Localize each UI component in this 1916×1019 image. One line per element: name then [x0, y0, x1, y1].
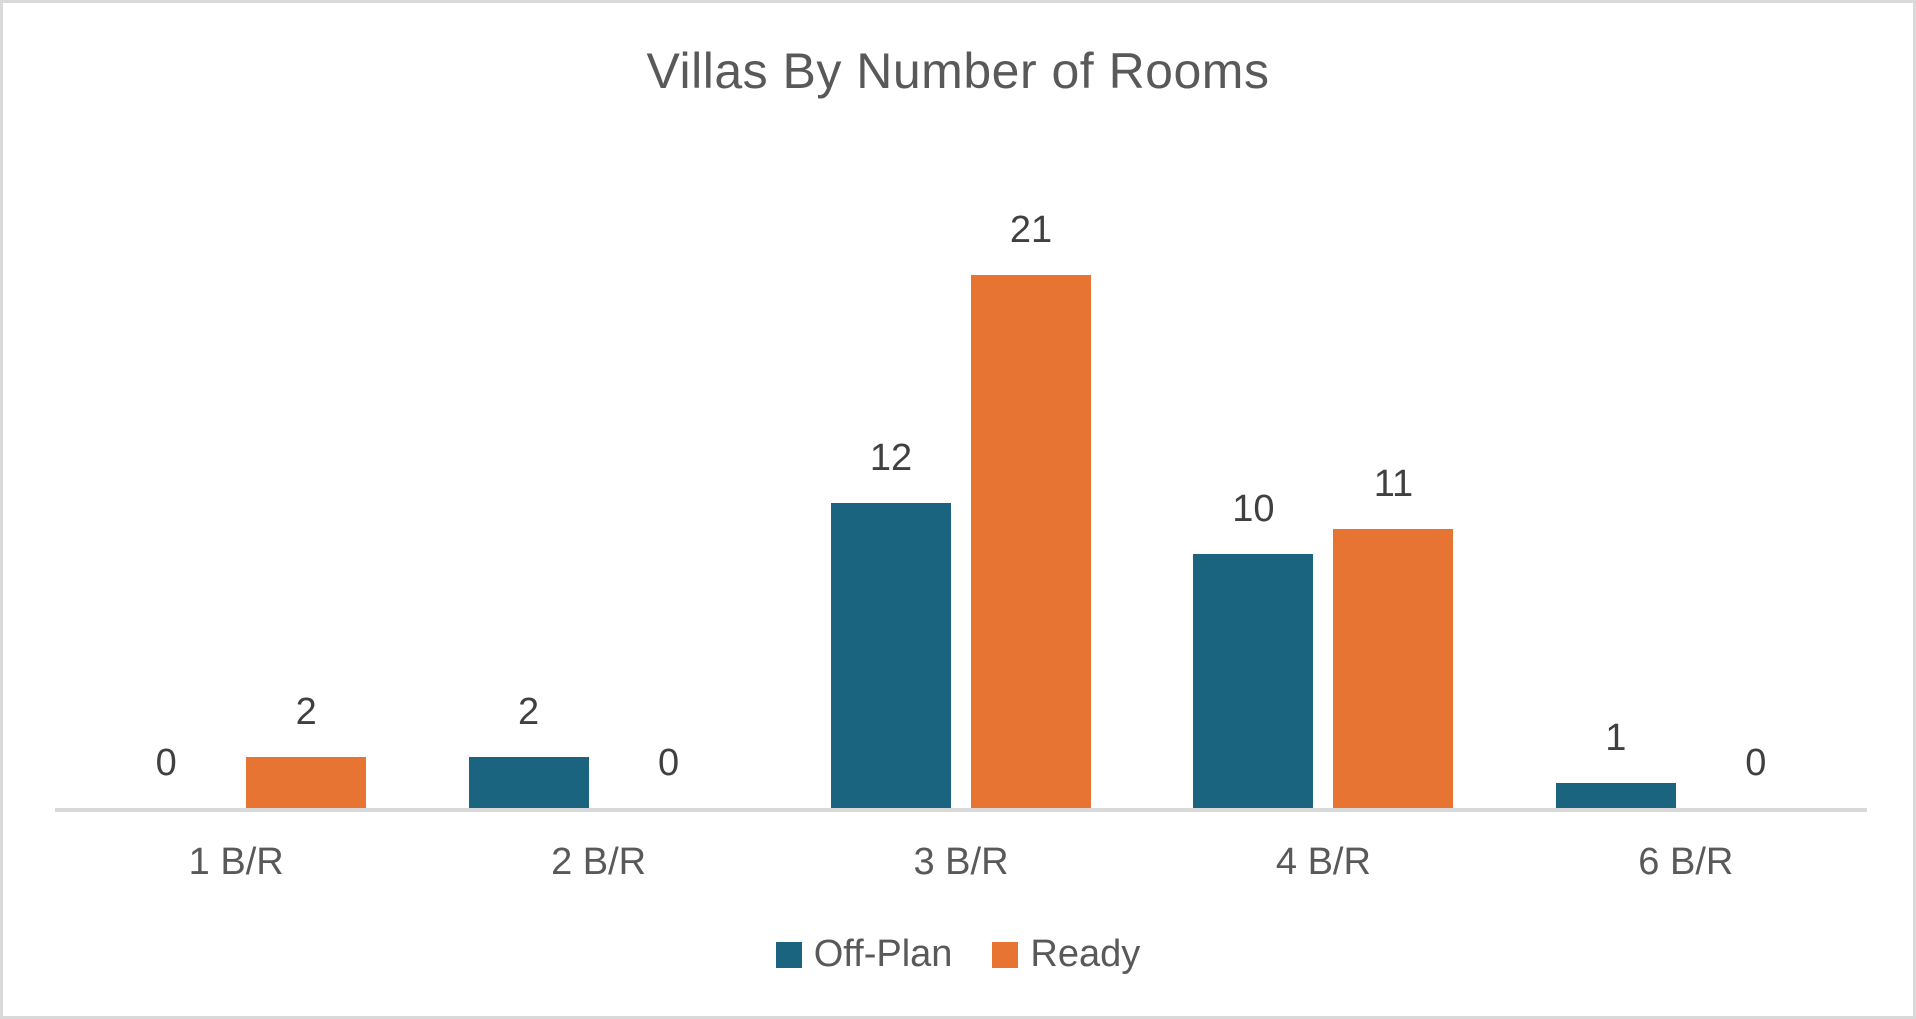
legend-swatch-icon [776, 942, 802, 968]
data-label-off-plan-1-b-r: 0 [156, 742, 177, 786]
x-axis-label-4-b-r: 4 B/R [1142, 841, 1504, 885]
bar-off-plan-4-b-r [1193, 554, 1313, 808]
chart-frame: Villas By Number of Rooms 02201221101110… [0, 0, 1916, 1019]
x-axis-label-2-b-r: 2 B/R [417, 841, 779, 885]
bar-off-plan-2-b-r [469, 757, 589, 808]
bar-column-ready-2-b-r: 0 [609, 742, 729, 808]
bar-column-off-plan-2-b-r: 2 [469, 691, 589, 808]
chart-title: Villas By Number of Rooms [3, 43, 1913, 101]
bar-column-ready-1-b-r: 2 [246, 691, 366, 808]
x-axis-label-1-b-r: 1 B/R [55, 841, 417, 885]
bar-off-plan-3-b-r [831, 503, 951, 808]
plot-area: 02201221101110 [55, 153, 1867, 808]
legend-label-ready: Ready [1030, 933, 1140, 977]
data-label-ready-4-b-r: 11 [1374, 463, 1413, 507]
data-label-off-plan-3-b-r: 12 [870, 437, 912, 481]
legend: Off-PlanReady [3, 933, 1913, 977]
data-label-off-plan-4-b-r: 10 [1232, 488, 1274, 532]
data-label-ready-6-b-r: 0 [1745, 742, 1766, 786]
bar-off-plan-6-b-r [1556, 783, 1676, 808]
legend-label-off-plan: Off-Plan [814, 933, 953, 977]
data-label-ready-2-b-r: 0 [658, 742, 679, 786]
bar-column-ready-4-b-r: 11 [1333, 463, 1453, 808]
bar-column-off-plan-3-b-r: 12 [831, 437, 951, 808]
bar-group-6-b-r: 10 [1505, 153, 1867, 808]
x-axis-labels: 1 B/R2 B/R3 B/R4 B/R6 B/R [55, 841, 1867, 885]
bar-column-ready-3-b-r: 21 [971, 209, 1091, 808]
bar-group-3-b-r: 1221 [780, 153, 1142, 808]
bar-ready-3-b-r [971, 275, 1091, 808]
bar-ready-4-b-r [1333, 529, 1453, 808]
legend-swatch-icon [992, 942, 1018, 968]
bar-ready-1-b-r [246, 757, 366, 808]
legend-item-off-plan: Off-Plan [776, 933, 953, 977]
bar-group-2-b-r: 20 [417, 153, 779, 808]
bar-column-off-plan-6-b-r: 1 [1556, 717, 1676, 808]
x-axis-line [55, 808, 1867, 812]
bar-group-4-b-r: 1011 [1142, 153, 1504, 808]
bar-column-off-plan-1-b-r: 0 [106, 742, 226, 808]
bar-group-1-b-r: 02 [55, 153, 417, 808]
legend-item-ready: Ready [992, 933, 1140, 977]
x-axis-label-3-b-r: 3 B/R [780, 841, 1142, 885]
bar-column-ready-6-b-r: 0 [1696, 742, 1816, 808]
data-label-off-plan-2-b-r: 2 [518, 691, 539, 735]
data-label-ready-3-b-r: 21 [1010, 209, 1052, 253]
data-label-off-plan-6-b-r: 1 [1605, 717, 1626, 761]
x-axis-label-6-b-r: 6 B/R [1505, 841, 1867, 885]
data-label-ready-1-b-r: 2 [296, 691, 317, 735]
bar-column-off-plan-4-b-r: 10 [1193, 488, 1313, 808]
